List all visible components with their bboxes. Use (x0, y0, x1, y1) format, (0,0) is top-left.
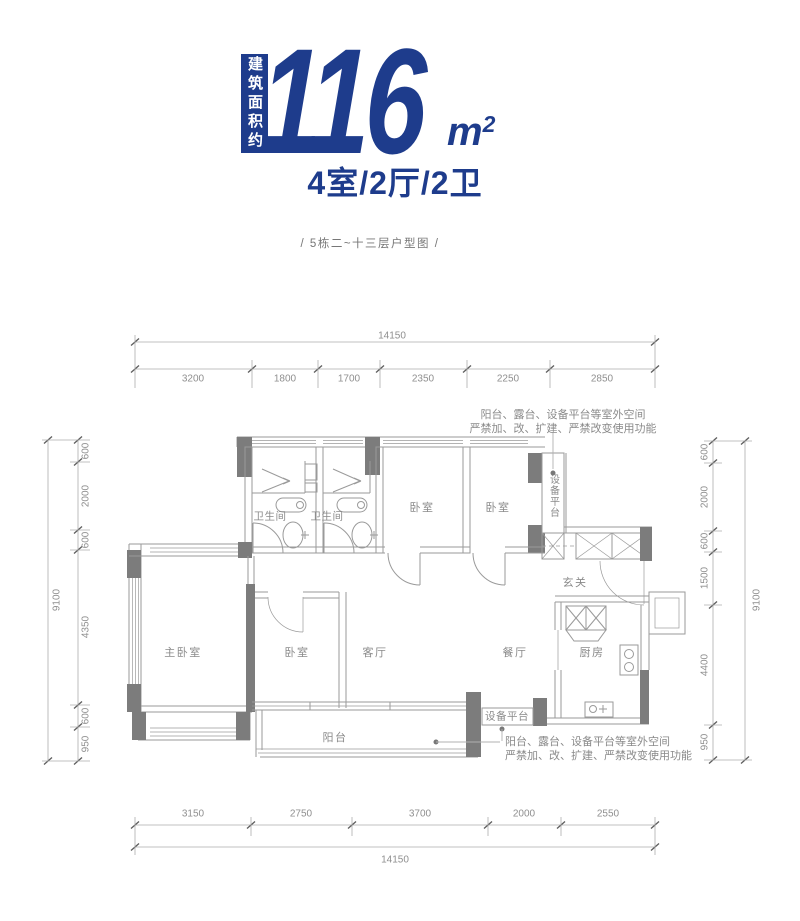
outdoor-note-bottom: 阳台、露台、设备平台等室外空间 严禁加、改、扩建、严禁改变使用功能 (505, 735, 692, 763)
dim-right-total: 9100 (752, 589, 763, 611)
dim-right-seg-3: 1500 (700, 567, 711, 589)
dim-bottom-seg-0: 3150 (182, 809, 204, 820)
room-label-bathroom-1: 卫生间 (254, 509, 287, 524)
room-label-bedroom-top-2: 卧室 (486, 499, 511, 515)
dim-left-seg-4: 600 (81, 708, 92, 725)
room-label-master-bedroom: 主卧室 (164, 644, 202, 660)
dim-bottom-seg-1: 2750 (290, 809, 312, 820)
dim-top-seg-2: 1700 (338, 374, 360, 385)
dim-right-seg-1: 2000 (700, 486, 711, 508)
dim-left-seg-1: 2000 (81, 485, 92, 507)
bedroom-living-walls (246, 556, 468, 712)
kitchen-fixtures (566, 606, 638, 717)
dim-top-seg-1: 1800 (274, 374, 296, 385)
dim-right-seg-5: 950 (700, 734, 711, 751)
room-label-bedroom-bottom: 卧室 (285, 644, 310, 660)
dim-top-seg-4: 2250 (497, 374, 519, 385)
dim-right-seg-0: 600 (700, 444, 711, 461)
bedroom-doors (388, 553, 505, 585)
dim-top-seg-0: 3200 (182, 374, 204, 385)
dim-left-total: 9100 (52, 589, 63, 611)
room-label-bedroom-top-1: 卧室 (410, 499, 435, 515)
floorplan-area: 卫生间 卫生间 卧室 卧室 设备平台 玄关 主卧室 卧室 客厅 餐厅 厨房 阳台… (0, 320, 800, 880)
dim-top-seg-5: 2850 (591, 374, 613, 385)
dim-left-seg-3: 4350 (81, 616, 92, 638)
master-bedroom-walls (127, 542, 252, 740)
room-label-living-room: 客厅 (363, 644, 388, 660)
dim-left-seg-5: 950 (81, 736, 92, 753)
dim-bottom-seg-4: 2550 (597, 809, 619, 820)
dim-right-seg-4: 4400 (700, 654, 711, 676)
dim-top-total: 14150 (378, 331, 406, 342)
floorplan-page: 建筑面积约 116 m2 4室/2厅/2卫 / 5栋二~十三层户型图 / (0, 0, 800, 921)
plan-caption: / 5栋二~十三层户型图 / (301, 235, 440, 251)
dim-bottom-seg-3: 2000 (513, 809, 535, 820)
area-value: 116 (258, 26, 423, 176)
dim-top-seg-3: 2350 (412, 374, 434, 385)
dim-right-seg-2: 600 (700, 533, 711, 550)
bathroom-fixtures (252, 461, 378, 553)
room-label-entry: 玄关 (563, 574, 588, 590)
room-label-kitchen: 厨房 (580, 644, 605, 660)
rooms-summary: 4室/2厅/2卫 (307, 158, 482, 204)
floorplan-drawing (0, 320, 800, 880)
room-label-balcony: 阳台 (323, 729, 348, 745)
area-unit: m2 (447, 110, 495, 155)
entry-area (542, 527, 685, 670)
room-label-dining-room: 餐厅 (503, 644, 528, 660)
dim-left-seg-0: 600 (81, 443, 92, 460)
dim-left-seg-2: 600 (81, 532, 92, 549)
room-label-equipment-platform-top: 设备平台 (546, 474, 561, 518)
room-label-bathroom-2: 卫生间 (311, 509, 344, 524)
room-label-equipment-platform-bottom: 设备平台 (485, 709, 529, 724)
dim-bottom-seg-2: 3700 (409, 809, 431, 820)
outdoor-note-top: 阳台、露台、设备平台等室外空间 严禁加、改、扩建、严禁改变使用功能 (470, 408, 657, 436)
dim-bottom-total: 14150 (381, 855, 409, 866)
